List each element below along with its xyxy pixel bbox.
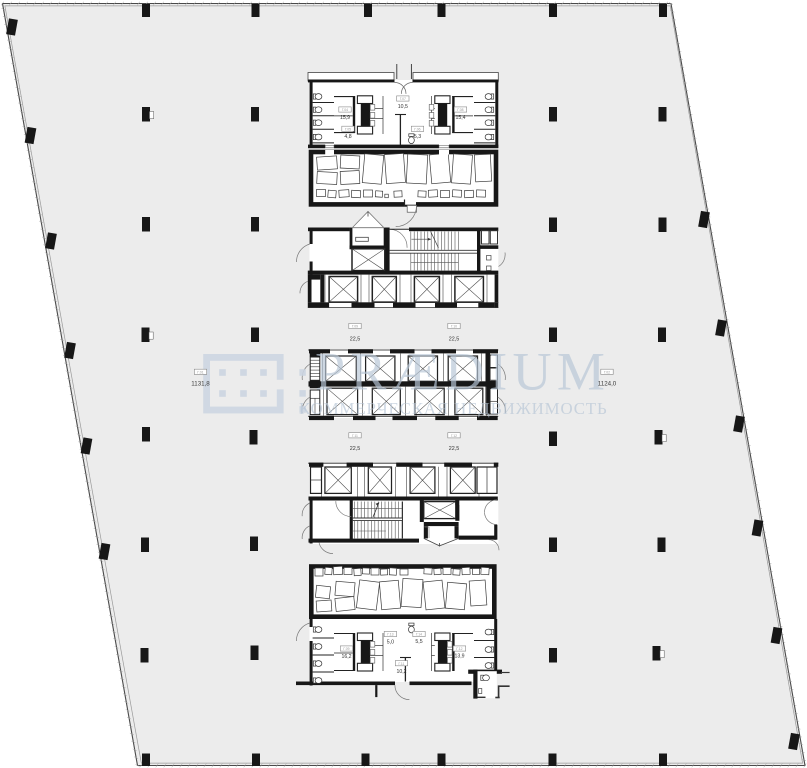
svg-text:Г.04: Г.04	[342, 108, 348, 112]
svg-text:1131,8: 1131,8	[191, 381, 210, 388]
svg-text:15,9: 15,9	[340, 115, 350, 121]
svg-text:16,2: 16,2	[341, 654, 351, 660]
svg-text:22,5: 22,5	[449, 446, 460, 452]
svg-text:5,3: 5,3	[414, 134, 421, 140]
svg-text:Г.14: Г.14	[416, 633, 422, 637]
svg-text:1124,0: 1124,0	[598, 381, 617, 388]
svg-text:КОММЕРЧЕСКАЯ НЕДВИЖИМОСТЬ: КОММЕРЧЕСКАЯ НЕДВИЖИМОСТЬ	[299, 399, 607, 418]
svg-text:Г.11: Г.11	[399, 662, 405, 666]
svg-text:PRÆDIUM: PRÆDIUM	[315, 342, 610, 402]
svg-text:Г.02: Г.02	[604, 370, 610, 374]
svg-text:Г.12: Г.12	[451, 434, 457, 438]
svg-text:5,0: 5,0	[387, 640, 394, 646]
svg-text:10,2: 10,2	[396, 669, 406, 675]
svg-text:Г.12: Г.12	[456, 647, 462, 651]
svg-text:15,4: 15,4	[455, 115, 465, 121]
svg-text:22,5: 22,5	[350, 446, 361, 452]
svg-text:Г.01: Г.01	[197, 370, 203, 374]
svg-text:Г.08: Г.08	[457, 108, 463, 112]
svg-text:4,8: 4,8	[344, 134, 351, 140]
svg-text:Г.09: Г.09	[352, 325, 358, 329]
svg-text:10,5: 10,5	[398, 104, 408, 110]
svg-text:Г.09: Г.09	[343, 647, 349, 651]
svg-text:Г.11: Г.11	[352, 434, 358, 438]
svg-text:Г.10: Г.10	[451, 325, 457, 329]
svg-text:Г.13: Г.13	[387, 633, 393, 637]
svg-text:13,9: 13,9	[454, 654, 464, 660]
svg-text:5,5: 5,5	[415, 639, 422, 645]
svg-text:Г.07: Г.07	[400, 97, 406, 101]
svg-text:Г.05: Г.05	[345, 127, 351, 131]
svg-text:Г.06: Г.06	[414, 127, 420, 131]
